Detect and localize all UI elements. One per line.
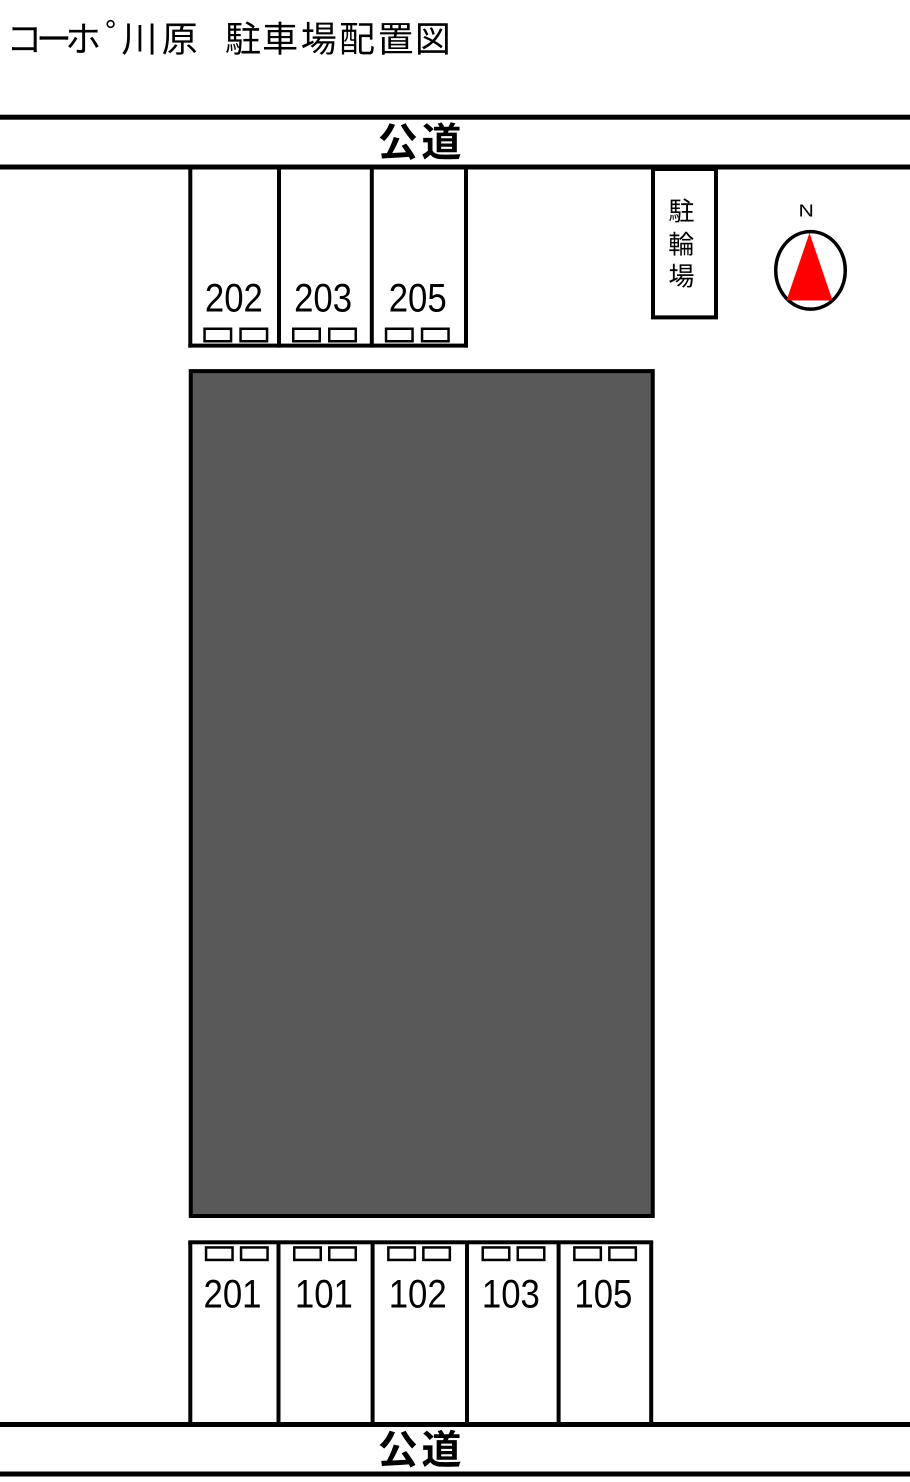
svg-text:205: 205 (389, 277, 447, 321)
svg-text:101: 101 (295, 1273, 353, 1317)
svg-text:102: 102 (389, 1273, 447, 1317)
svg-text:202: 202 (205, 277, 263, 321)
svg-text:103: 103 (482, 1273, 540, 1317)
svg-text:105: 105 (574, 1273, 632, 1317)
svg-text:N: N (799, 201, 814, 221)
svg-text:201: 201 (204, 1273, 262, 1317)
svg-text:203: 203 (294, 277, 352, 321)
